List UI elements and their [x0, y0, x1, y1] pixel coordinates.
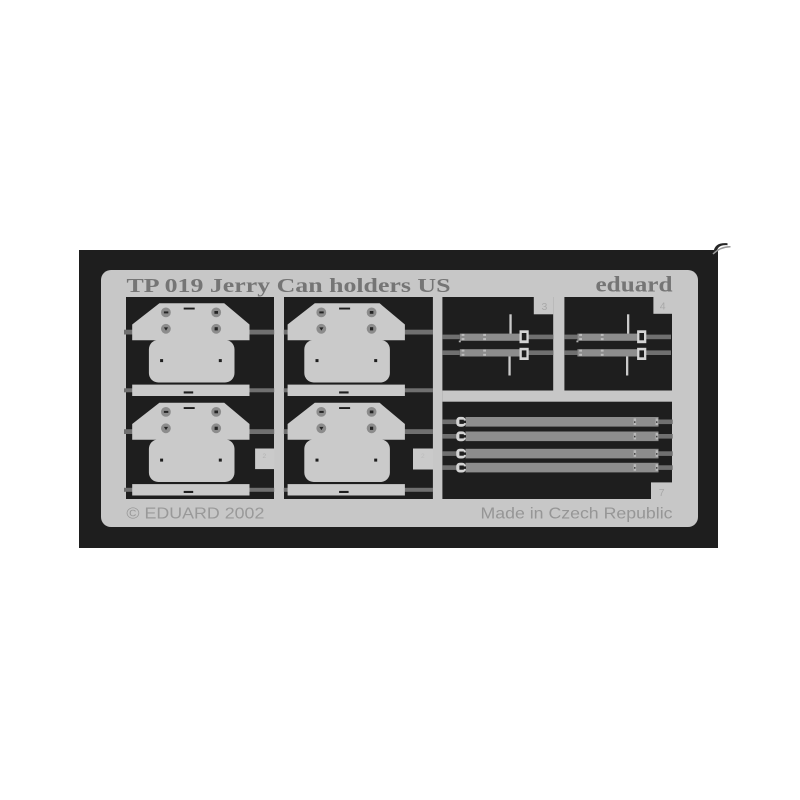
svg-text:TP 019 Jerry Can holders US: TP 019 Jerry Can holders US	[127, 275, 451, 297]
svg-text:2: 2	[421, 453, 425, 460]
svg-text:Made in Czech Republic: Made in Czech Republic	[481, 506, 673, 523]
svg-text:© EDUARD 2002: © EDUARD 2002	[126, 506, 264, 523]
svg-text:eduard: eduard	[596, 272, 673, 297]
svg-text:7: 7	[659, 487, 665, 499]
svg-text:2: 2	[263, 453, 267, 460]
svg-text:4: 4	[660, 301, 666, 313]
svg-text:3: 3	[542, 301, 548, 313]
